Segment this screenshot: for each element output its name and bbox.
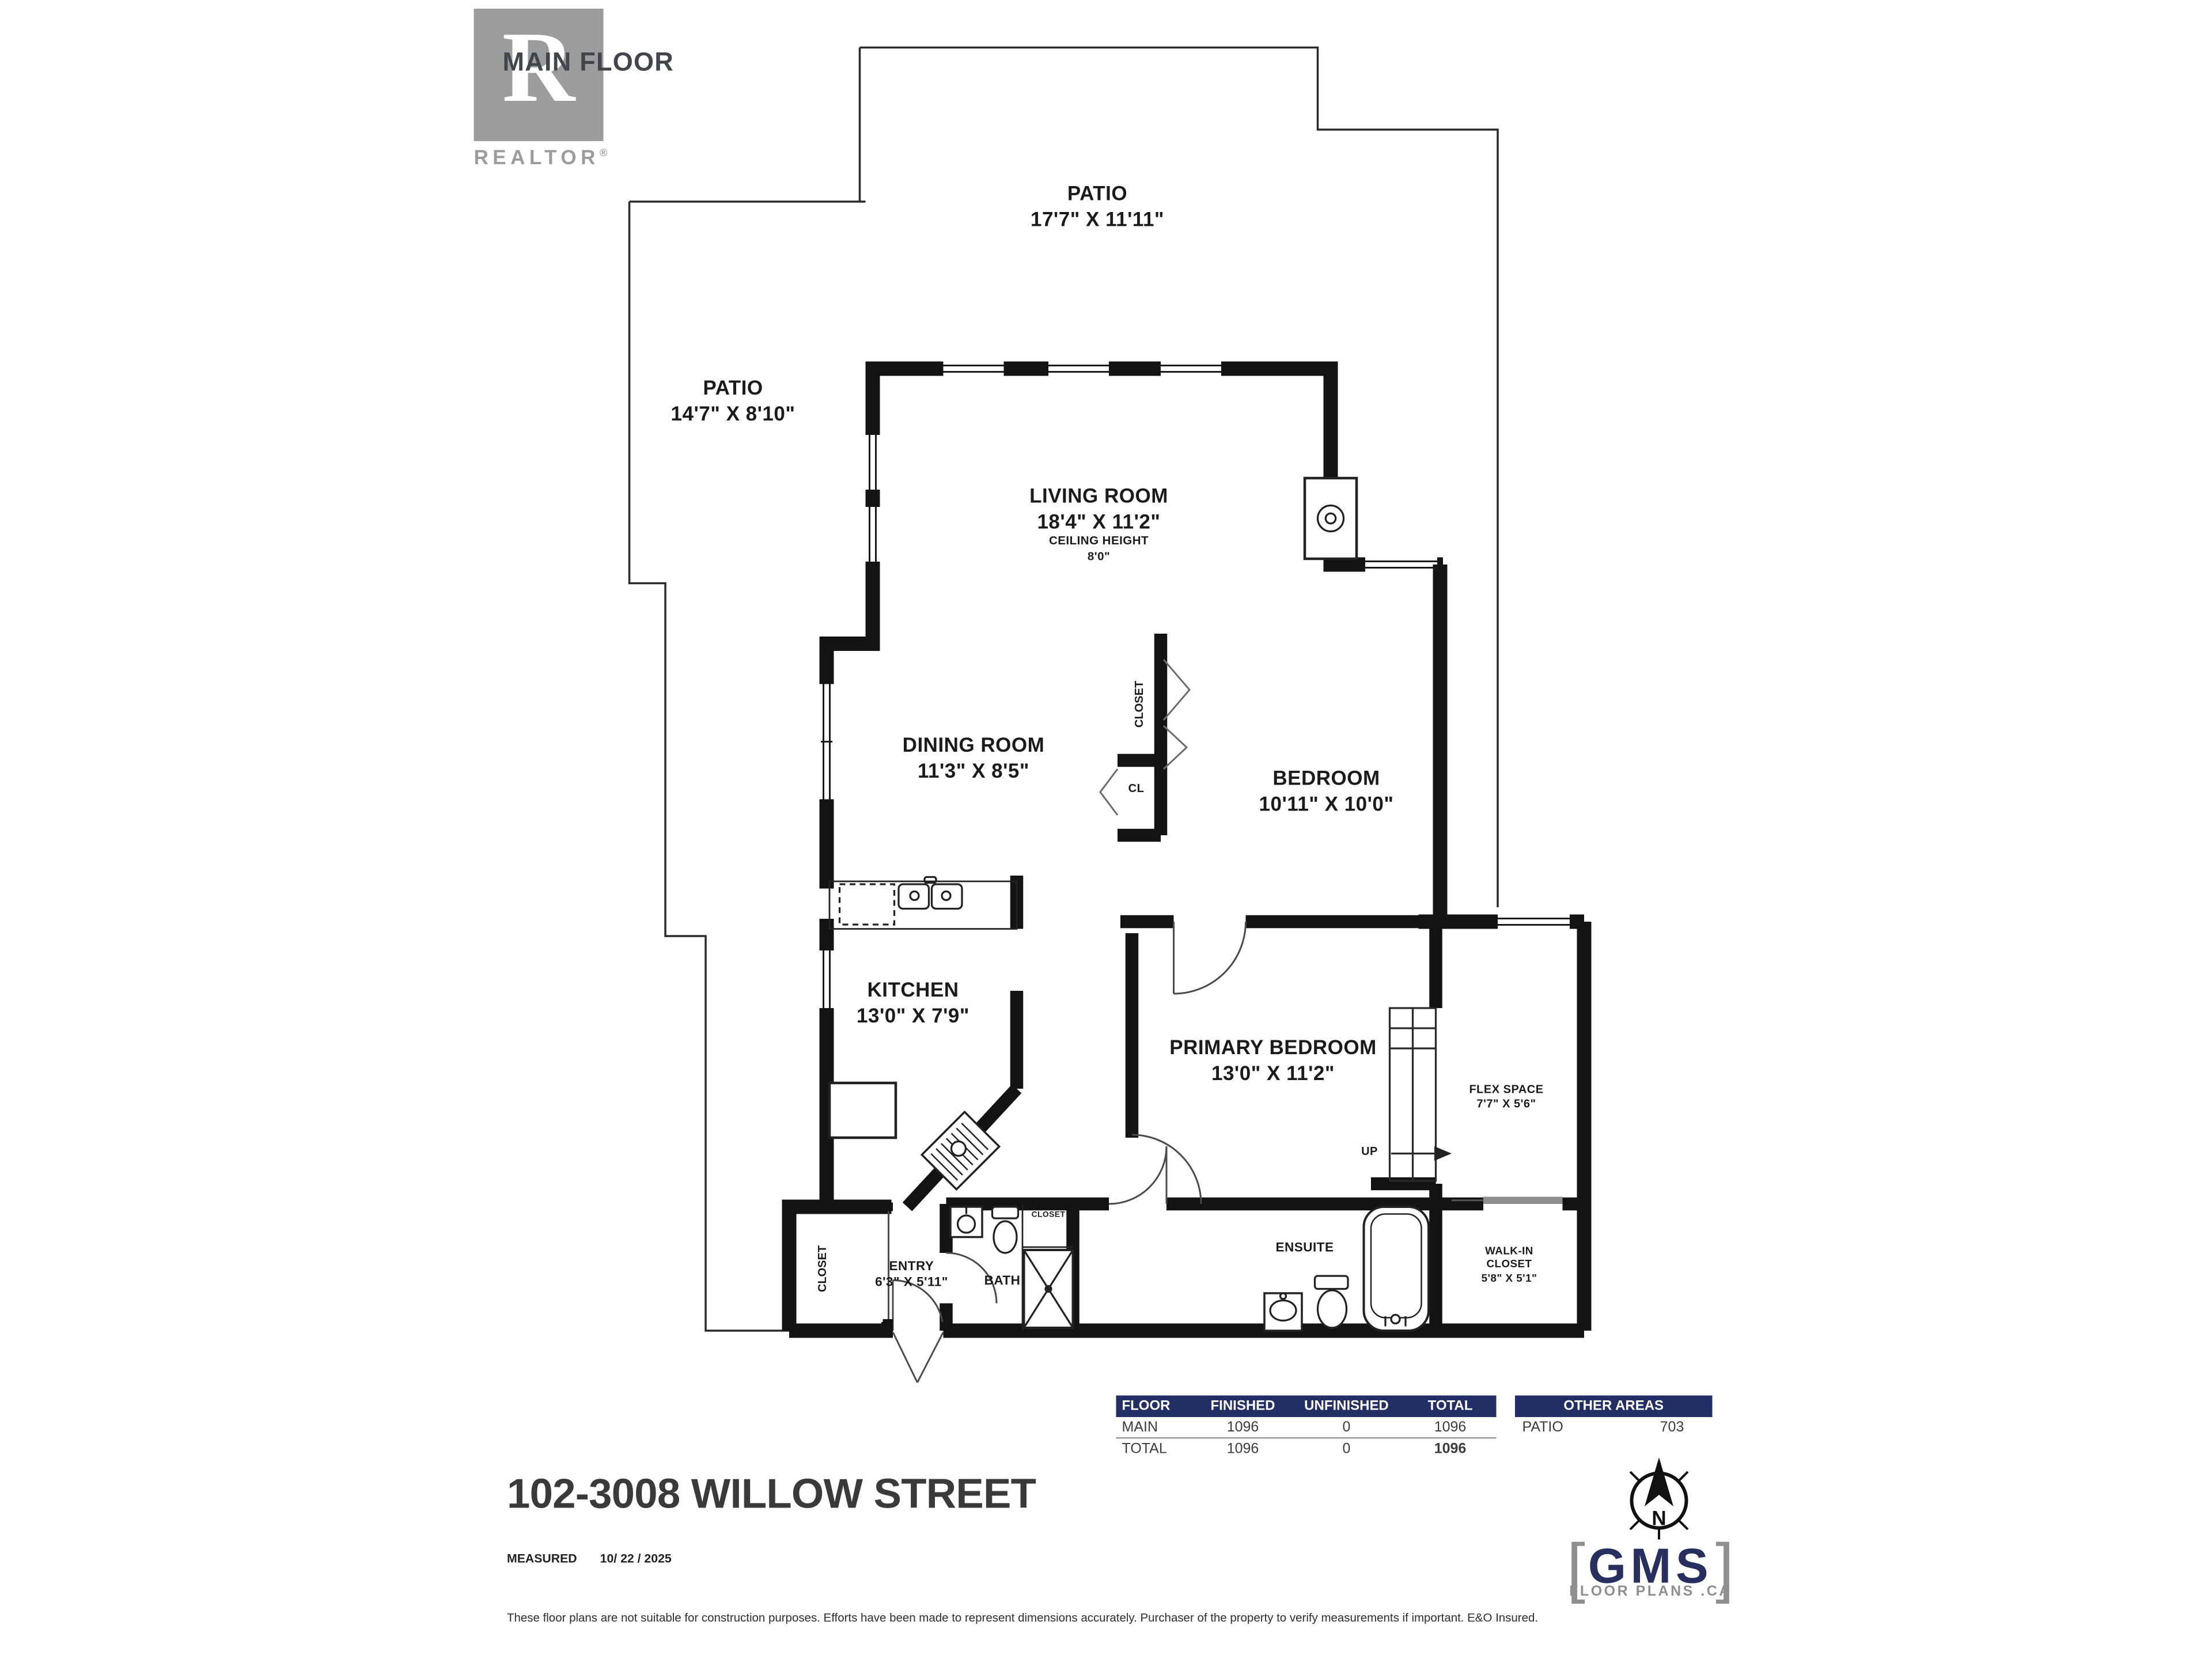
- up-label: UP: [1361, 1145, 1378, 1160]
- fireplace: [1305, 478, 1357, 559]
- patio-outline: [630, 48, 1498, 1331]
- floor-plan-drawing: N: [0, 0, 2212, 1659]
- cl-label: CL: [1128, 782, 1145, 797]
- ensuite-sink: [1264, 1293, 1302, 1331]
- cl-bifold: [1100, 769, 1118, 815]
- exterior-walls: [789, 362, 1584, 1331]
- stairs-up: [1390, 1008, 1438, 1181]
- page-title: MAIN FLOOR: [503, 48, 675, 78]
- dishwasher: [840, 884, 895, 925]
- realtor-wordmark: REALTOR®: [474, 146, 607, 169]
- table-row-total: TOTAL 1096 0 1096: [1116, 1437, 1497, 1459]
- fridge: [829, 1083, 896, 1138]
- closet-label-dining: CLOSET: [1132, 681, 1146, 728]
- room-label-bedroom: BEDROOM 10'11" X 10'0": [1259, 766, 1394, 817]
- area-table-header: FLOOR FINISHED UNFINISHED TOTAL: [1116, 1396, 1497, 1418]
- room-label-patio-left: PATIO 14'7" X 8'10": [671, 376, 796, 427]
- bath-toilet: [993, 1207, 1018, 1253]
- measured-date: MEASURED 10/ 22 / 2025: [507, 1551, 672, 1566]
- room-label-ensuite: ENSUITE: [1275, 1240, 1334, 1256]
- registered-mark: ®: [600, 149, 607, 159]
- disclaimer-text: These floor plans are not suitable for c…: [507, 1612, 1573, 1625]
- area-table: FLOOR FINISHED UNFINISHED TOTAL MAIN 109…: [1116, 1396, 1497, 1459]
- up-arrow-head: [1434, 1146, 1452, 1161]
- room-label-dining: DINING ROOM 11'3" X 8'5": [903, 733, 1045, 784]
- room-label-patio-top: PATIO 17'7" X 11'11": [1031, 181, 1164, 232]
- closet-label-entry: CLOSET: [816, 1245, 829, 1292]
- ensuite-door-arc: [1109, 1146, 1166, 1204]
- bath-sink: [950, 1207, 982, 1237]
- walkin-slider: [1483, 1197, 1563, 1205]
- shower: [1024, 1250, 1073, 1328]
- page: N R MAIN FLOOR REALTOR® PATIO 17'7" X 11…: [0, 0, 2212, 1659]
- room-label-walkin: WALK-IN CLOSET 5'8" X 5'1": [1482, 1244, 1537, 1285]
- room-label-kitchen: KITCHEN 13'0" X 7'9": [857, 978, 969, 1029]
- front-door-arc: [893, 1281, 944, 1383]
- other-areas-table: OTHER AREAS PATIO 703: [1515, 1396, 1713, 1438]
- other-areas-header: OTHER AREAS: [1515, 1396, 1713, 1418]
- closet-label-bath: CLOSET: [1032, 1211, 1066, 1221]
- room-label-living: LIVING ROOM 18'4" X 11'2" CEILING HEIGHT…: [1029, 484, 1168, 565]
- table-row-main: MAIN 1096 0 1096: [1116, 1417, 1497, 1437]
- property-address: 102-3008 WILLOW STREET: [507, 1472, 1036, 1520]
- room-label-entry: ENTRY 6'3" X 5'11": [875, 1259, 948, 1291]
- table-row-patio: PATIO 703: [1515, 1417, 1713, 1437]
- floor-plan-sheet: N R MAIN FLOOR REALTOR® PATIO 17'7" X 11…: [0, 0, 2212, 1659]
- bathtub: [1364, 1207, 1429, 1331]
- gms-logo: [ GMS ] FLOOR PLANS .CA: [1567, 1541, 1734, 1600]
- closet-bifold: [1164, 660, 1190, 769]
- compass-letter: N: [1652, 1508, 1666, 1530]
- room-label-flex: FLEX SPACE 7'7" X 5'6": [1469, 1083, 1543, 1112]
- ensuite-toilet: [1315, 1276, 1349, 1328]
- gms-tagline: FLOOR PLANS .CA: [1567, 1584, 1734, 1600]
- room-label-bath: BATH: [984, 1273, 1021, 1289]
- windows: [821, 366, 1570, 1009]
- bedroom-door-arc: [1174, 922, 1246, 994]
- room-label-primary: PRIMARY BEDROOM 13'0" X 11'2": [1169, 1036, 1376, 1086]
